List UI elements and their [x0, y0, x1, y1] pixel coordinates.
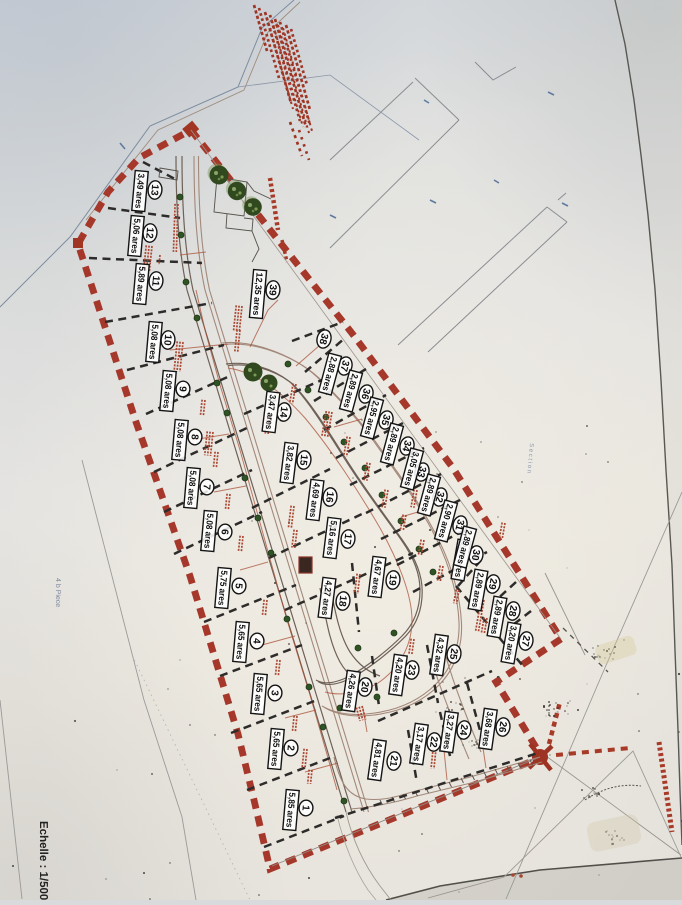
svg-text:24: 24 — [457, 724, 470, 737]
svg-text:39: 39 — [266, 284, 278, 296]
svg-text:22: 22 — [427, 736, 440, 749]
svg-text:10: 10 — [161, 334, 173, 346]
svg-text:20: 20 — [358, 681, 371, 694]
svg-text:Echelle : 1/500: Echelle : 1/500 — [37, 821, 49, 900]
svg-text:11: 11 — [149, 275, 161, 287]
svg-text:17: 17 — [341, 533, 353, 546]
svg-text:4 b Piece: 4 b Piece — [54, 578, 62, 607]
svg-text:23: 23 — [405, 664, 418, 677]
svg-text:25: 25 — [447, 648, 460, 661]
svg-text:21: 21 — [387, 755, 400, 768]
svg-text:13: 13 — [148, 184, 160, 196]
svg-text:26: 26 — [496, 721, 509, 734]
svg-text:15: 15 — [297, 454, 309, 467]
svg-text:12: 12 — [143, 227, 155, 239]
svg-text:19: 19 — [386, 574, 398, 587]
svg-text:18: 18 — [336, 595, 348, 608]
svg-text:16: 16 — [323, 491, 335, 504]
